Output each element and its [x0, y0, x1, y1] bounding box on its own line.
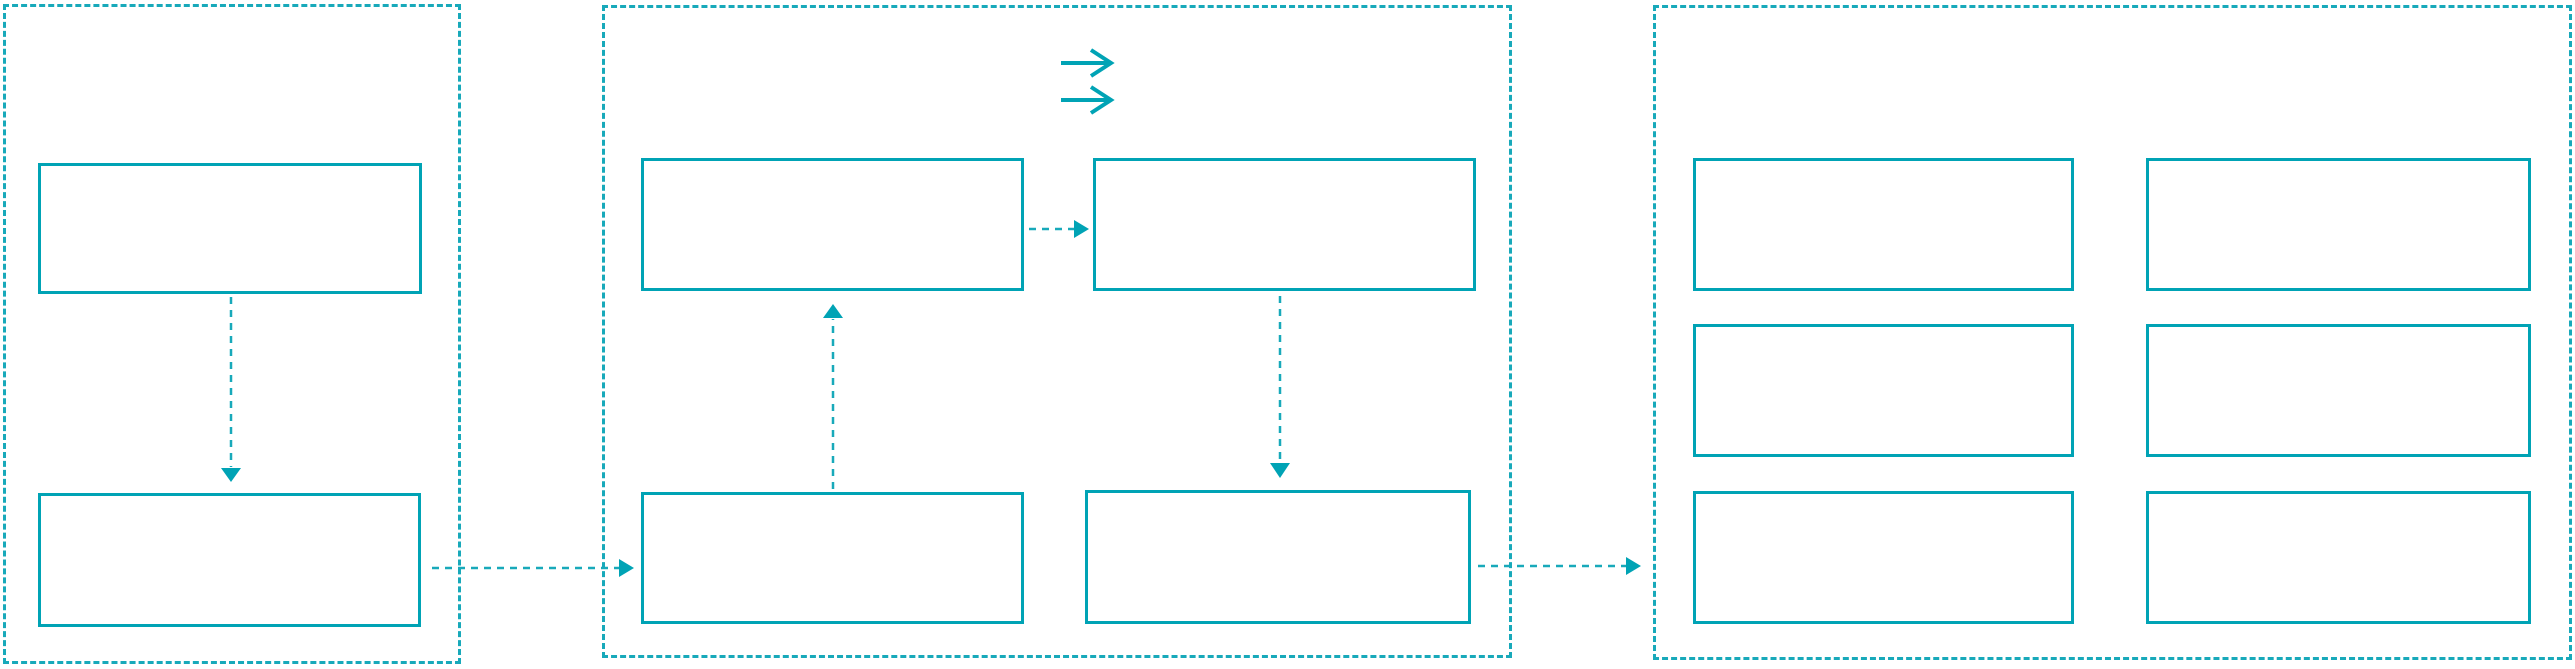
right-arrow-icon [1061, 50, 1111, 76]
double-right-arrow-icon [1060, 47, 1116, 115]
box-left-top [38, 163, 422, 294]
box-left-bottom [38, 493, 421, 627]
box-right-row1-col2 [2146, 158, 2531, 291]
box-right-row2-col2 [2146, 324, 2531, 457]
right-arrow-icon [1061, 87, 1111, 113]
box-middle-top-right [1093, 158, 1476, 291]
box-middle-bottom-left [641, 492, 1024, 624]
box-right-row3-col1 [1693, 491, 2074, 624]
box-right-row3-col2 [2146, 491, 2531, 624]
box-right-row1-col1 [1693, 158, 2074, 291]
box-middle-bottom-right [1085, 490, 1471, 624]
flow-diagram-canvas [0, 0, 2575, 669]
box-middle-top-left [641, 158, 1024, 291]
box-right-row2-col1 [1693, 324, 2074, 457]
